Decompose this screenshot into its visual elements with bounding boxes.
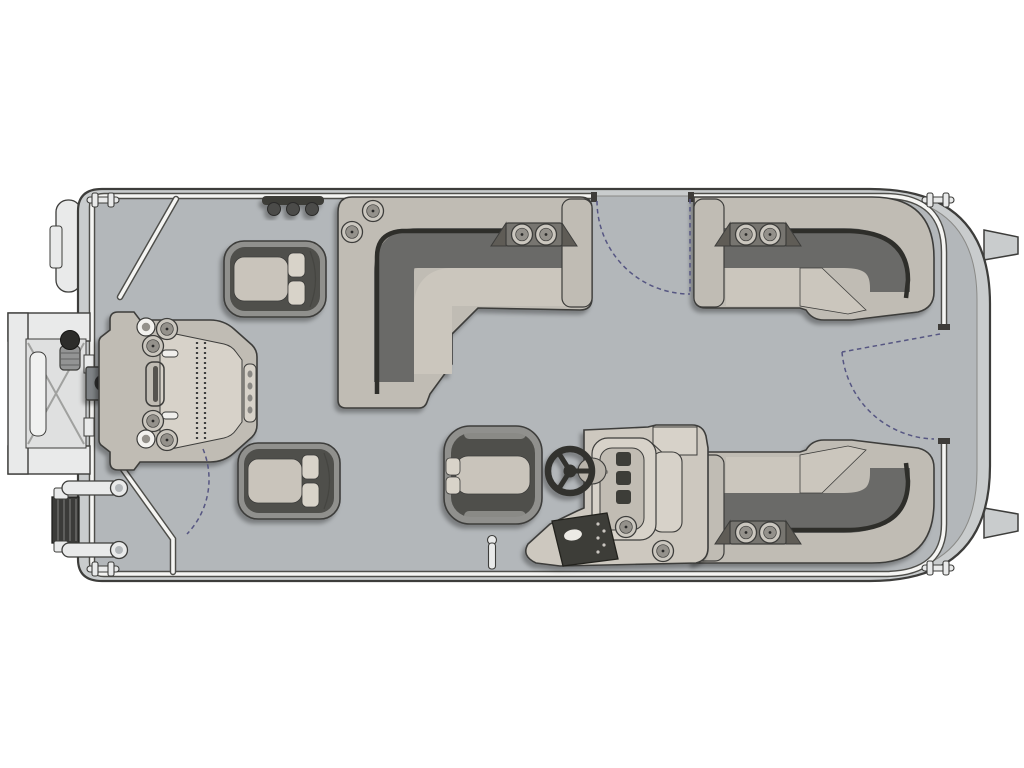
cupholder-plate — [491, 223, 577, 246]
ski-tow-post: Ski tow / table post socket — [488, 536, 497, 570]
cupholder-plate — [715, 521, 801, 544]
bow-boarding-door: Open bow-side boarding door — [8, 313, 94, 474]
helm-cupholder — [653, 541, 674, 562]
captain-chair-forward: Swivel bucket chair, forward, facing bow — [224, 241, 326, 317]
bow-cupholder — [137, 318, 155, 336]
bow-cupholder — [143, 336, 164, 357]
cupholder-plate — [715, 223, 801, 246]
lounge-corner-cupholder — [342, 222, 363, 243]
helm-cupholder — [616, 517, 637, 538]
bow-cupholder — [143, 411, 164, 432]
bow-cupholder — [137, 430, 155, 448]
bow-console: Bow console with cupholders, latch strip… — [99, 312, 257, 470]
helm-chair: Helm bucket seat facing helm console — [444, 426, 542, 524]
captain-chair-aft: Swivel bucket chair, aft, facing bow — [238, 443, 340, 519]
l-lounge-aft-top: Corner lounge with cupholder armrest, af… — [694, 197, 934, 320]
pontoon-floorplan-diagram: Pontoon boat floor plan — overhead deck … — [0, 0, 1024, 768]
lounge-corner-cupholder — [363, 201, 384, 222]
bow-bumper: Bow corner fender — [50, 200, 81, 292]
pontoon-floorplan-page: Pontoon boat floor plan — overhead deck … — [0, 0, 1024, 768]
bow-cupholder — [157, 319, 178, 340]
gate-hinge-bar: Gate hinge fittings — [262, 196, 324, 216]
switch-panel — [552, 513, 618, 566]
door-latch-knob — [60, 331, 80, 371]
bow-cupholder — [157, 430, 178, 451]
